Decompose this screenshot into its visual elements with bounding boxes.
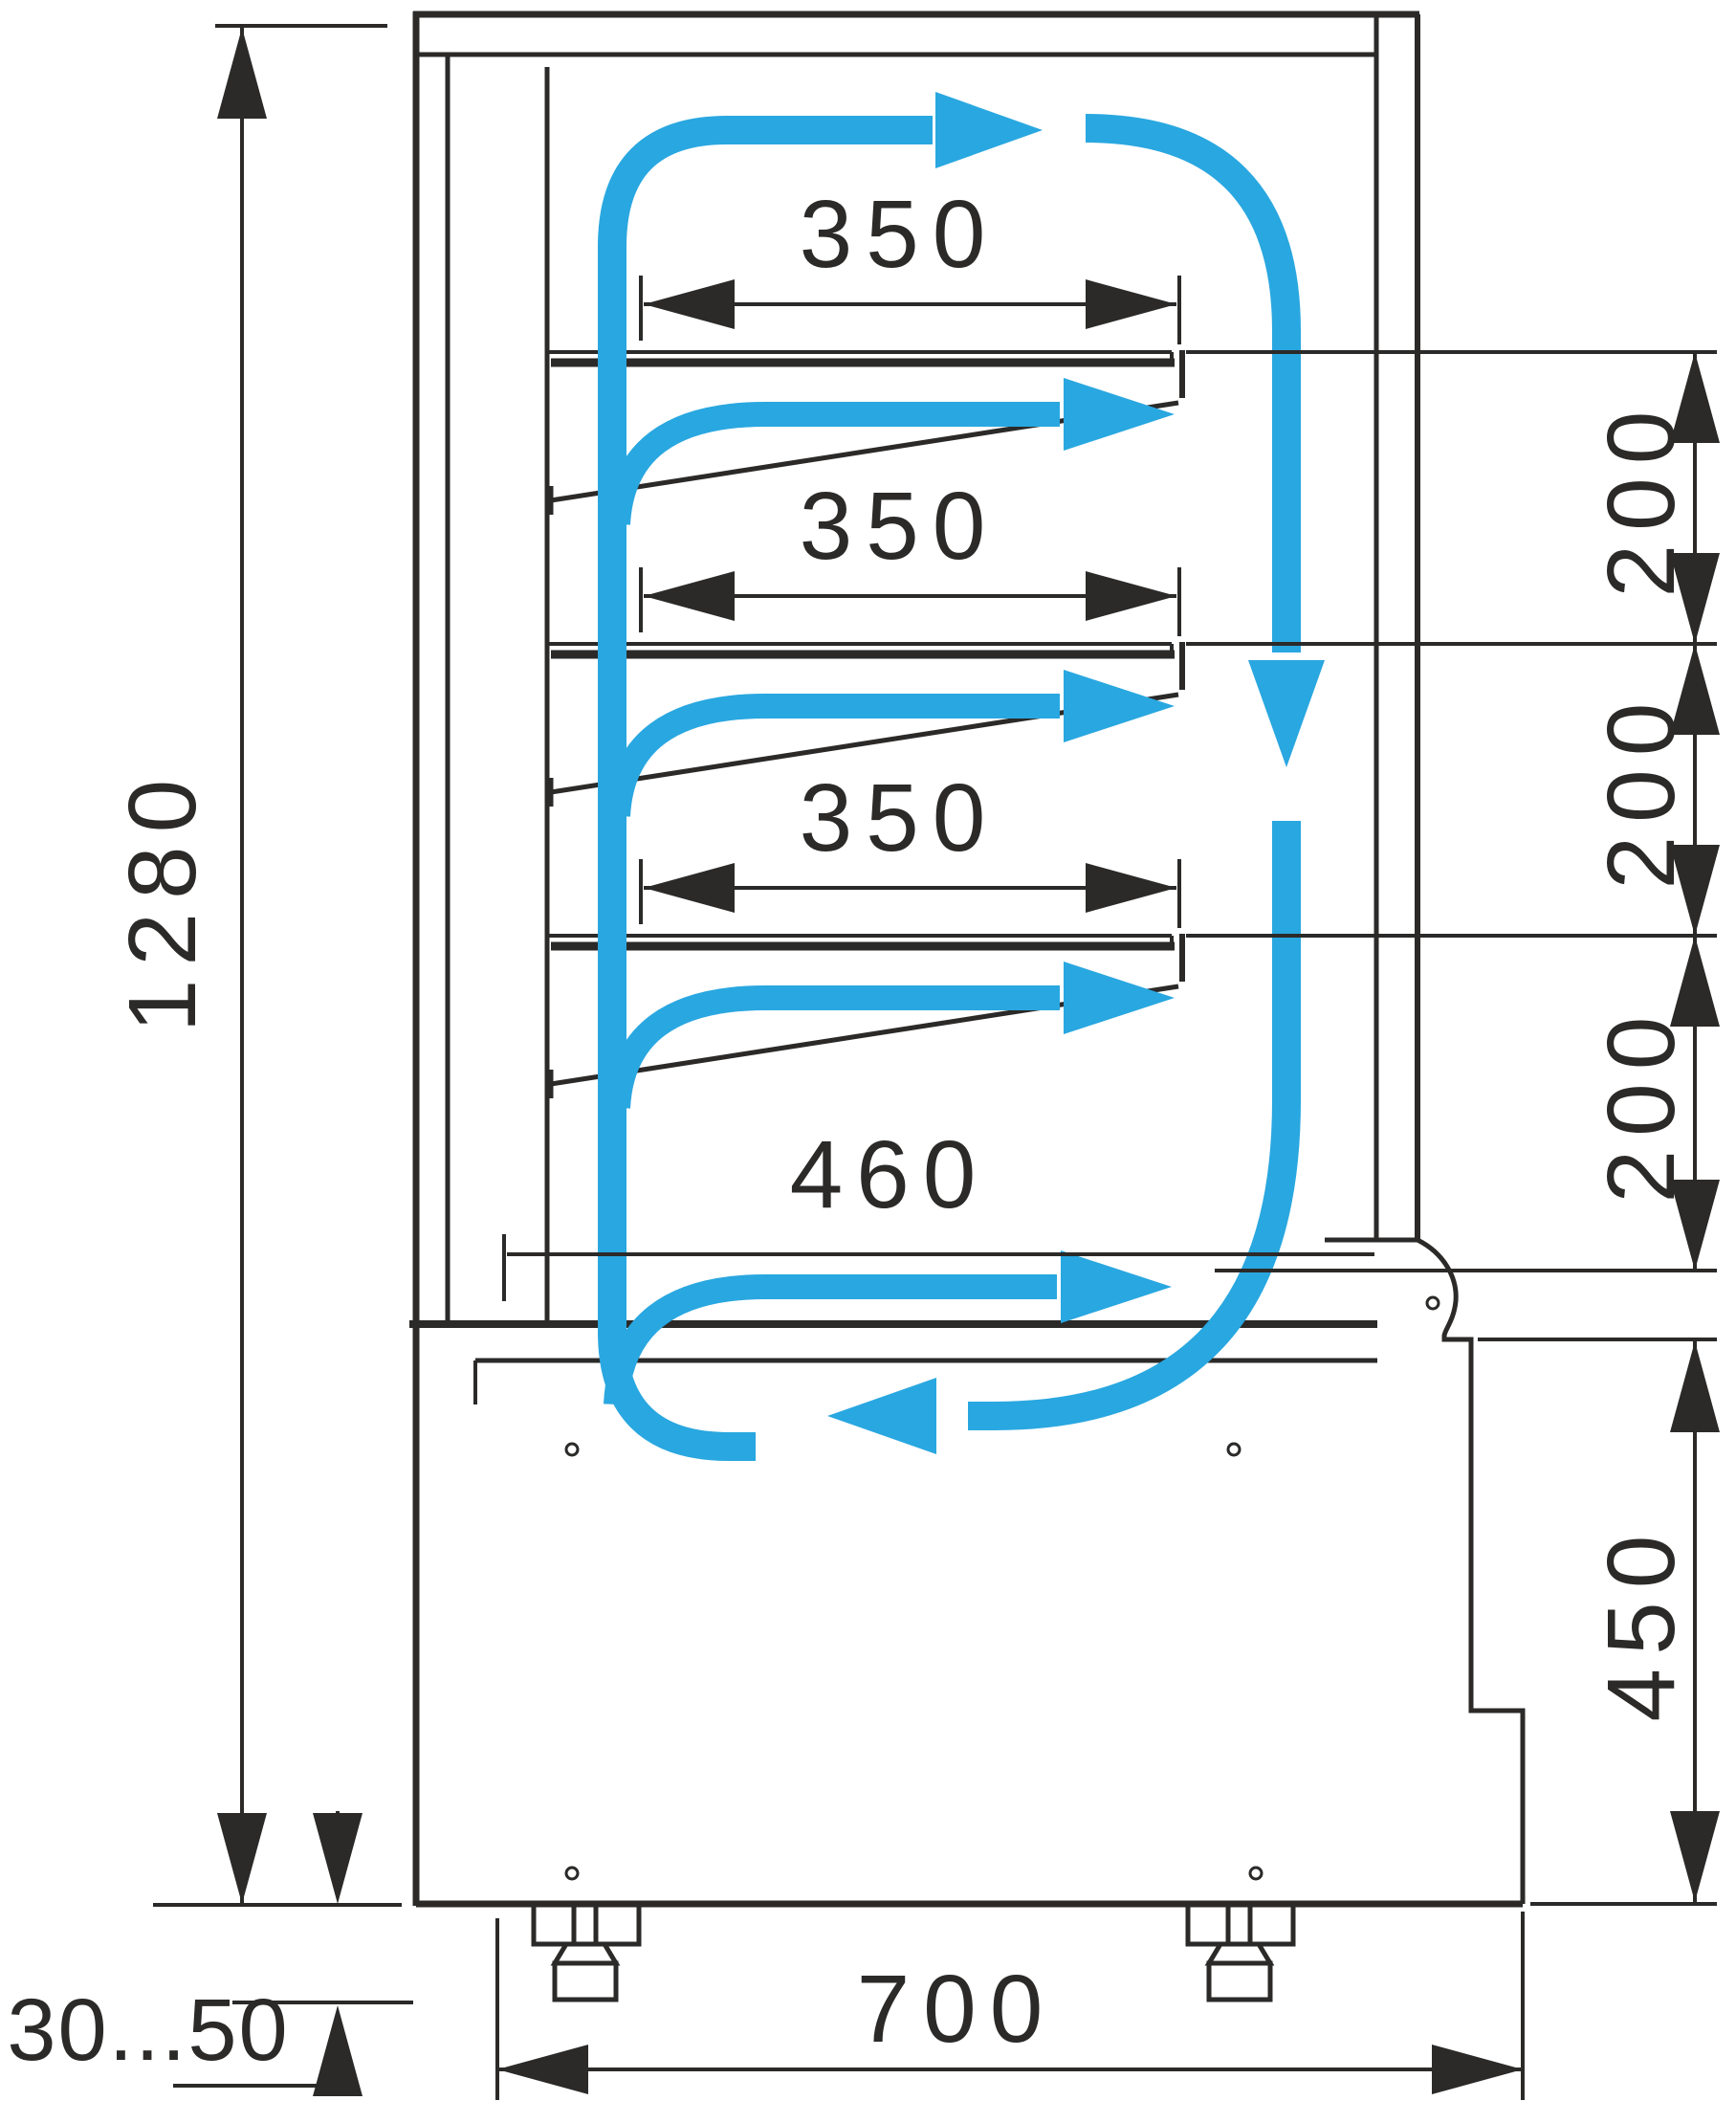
dim-label-spacing: 200 xyxy=(1588,690,1695,890)
shelf-jet-1-arrow-icon xyxy=(1064,378,1175,451)
airflow-front-arc xyxy=(1086,128,1286,652)
front-downflow-arrow-icon xyxy=(1248,660,1325,767)
foot-flange xyxy=(534,1904,639,1944)
shelf-jet-3-arrow-icon xyxy=(1064,962,1175,1034)
arrowhead-right-icon xyxy=(1086,863,1176,913)
arrowhead-left-icon xyxy=(644,279,735,329)
dim-label-leg-adjustment: 30...50 xyxy=(7,1981,289,2079)
arrowhead-up-icon xyxy=(217,28,267,119)
foot-pad xyxy=(1209,1963,1270,2000)
dim-leg-adjustment: 30...50 xyxy=(7,1811,413,2096)
dim-shelf-depth-1: 350 xyxy=(641,181,1179,344)
dim-label-overall-depth: 700 xyxy=(857,1956,1057,2063)
arrowhead-up-icon xyxy=(1670,1341,1720,1432)
arrowhead-right-icon xyxy=(1432,2045,1523,2094)
dim-shelf-depth-2: 350 xyxy=(641,473,1179,636)
top-supply-arrow-icon xyxy=(935,92,1043,168)
dim-label-base-height: 450 xyxy=(1588,1522,1695,1722)
arrowhead-right-icon xyxy=(1086,279,1176,329)
technical-drawing-page: 1280 350 350 350 200 xyxy=(0,0,1736,2123)
screw-icon xyxy=(1228,1444,1240,1455)
foot-cone xyxy=(555,1944,616,1963)
dim-label-spacing: 200 xyxy=(1588,1004,1695,1204)
bottom-shelf-jet-arrow-icon xyxy=(1061,1250,1172,1323)
dim-label-shelf-depth: 350 xyxy=(800,764,1000,872)
right-foot xyxy=(1188,1904,1293,2000)
dim-label-shelf-depth: 350 xyxy=(800,181,1000,288)
arrowhead-right-icon xyxy=(1086,571,1176,621)
left-foot xyxy=(534,1904,639,2000)
arrowhead-down-icon xyxy=(1670,1811,1720,1902)
shelf-jet-2-arrow-icon xyxy=(1064,670,1175,742)
dim-overall-depth: 700 xyxy=(497,1912,1523,2100)
screw-icon xyxy=(1427,1297,1439,1309)
dim-overall-height: 1280 xyxy=(109,26,402,1905)
arrowhead-down-icon xyxy=(313,1813,363,1904)
cabinet-structure xyxy=(409,11,1523,1906)
foot-flange xyxy=(1188,1904,1293,1944)
dim-label-bottom-shelf-depth: 460 xyxy=(790,1121,990,1228)
foot-pad xyxy=(555,1963,616,2000)
arrowhead-left-icon xyxy=(644,863,735,913)
dim-label-spacing: 200 xyxy=(1588,398,1695,598)
dim-base-height: 450 xyxy=(1478,1339,1720,1904)
screw-icon xyxy=(1250,1868,1262,1879)
dim-shelf-depth-3: 350 xyxy=(641,764,1179,928)
dim-label-shelf-depth: 350 xyxy=(800,473,1000,580)
screw-icon xyxy=(566,1444,578,1455)
dim-label-overall-height: 1280 xyxy=(109,766,216,1032)
screw-icon xyxy=(566,1868,578,1879)
arrowhead-down-icon xyxy=(217,1813,267,1904)
return-flow-arrow-icon xyxy=(827,1378,936,1454)
dim-shelf-spacings: 200 200 200 xyxy=(1186,352,1720,1271)
arrowhead-left-icon xyxy=(644,571,735,621)
foot-cone xyxy=(1209,1944,1270,1963)
display-case-section-drawing: 1280 350 350 350 200 xyxy=(0,0,1736,2123)
arrowhead-left-icon xyxy=(497,2045,588,2094)
bottom-shelf-jet-path xyxy=(616,1287,1057,1404)
